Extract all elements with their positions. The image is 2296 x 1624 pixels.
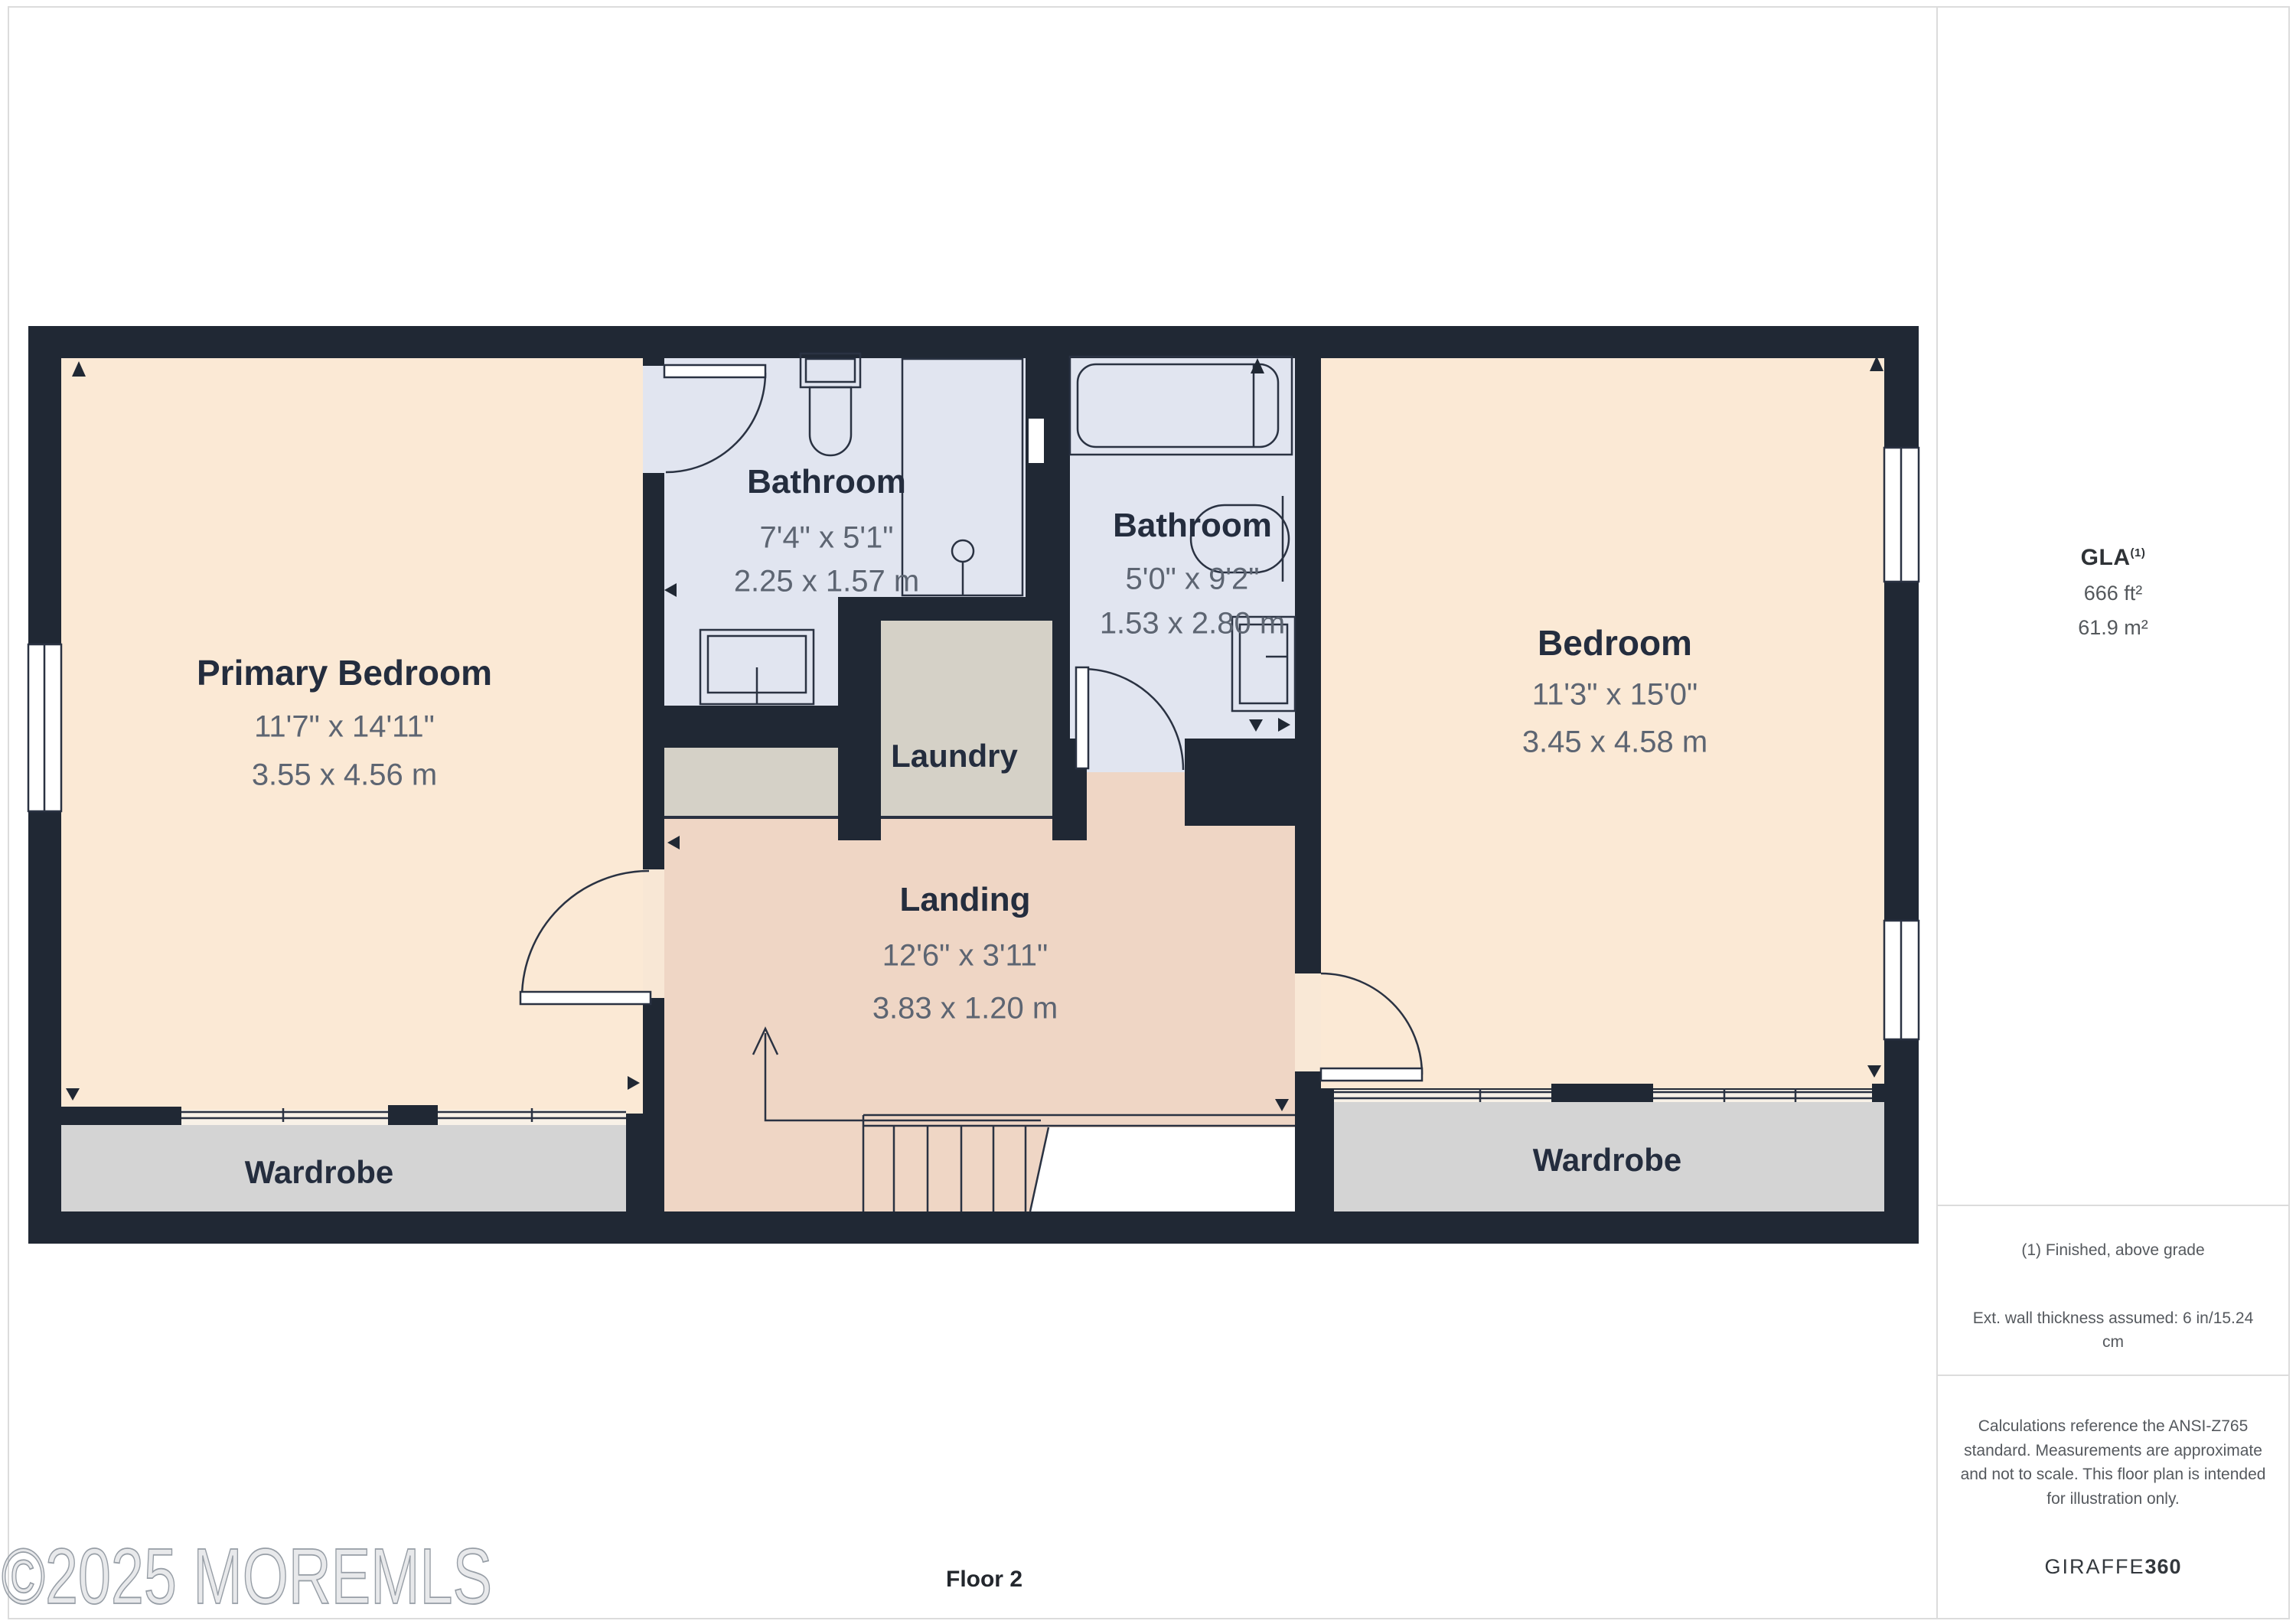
room-dim-imperial: 11'7" x 14'11" xyxy=(254,710,435,745)
room-dim-metric: 3.55 x 4.56 m xyxy=(252,758,437,793)
sidebar-section-divider xyxy=(1938,1205,2288,1206)
room-dim-imperial: 11'3" x 15'0" xyxy=(1532,678,1698,713)
room-label-bathroom1: Bathroom xyxy=(747,463,906,501)
wall-niche xyxy=(1029,419,1044,463)
room-label-bathroom2: Bathroom xyxy=(1113,507,1272,545)
gla-title: GLA(1) xyxy=(1936,545,2290,571)
gla-sqft: 666 ft² xyxy=(1936,582,2290,605)
stairwell-void xyxy=(1030,1127,1295,1211)
gla-sqm: 61.9 m² xyxy=(1936,616,2290,640)
room-dim-metric: 3.45 x 4.58 m xyxy=(1522,726,1707,760)
floorplan-page: Primary Bedroom 11'7" x 14'11" 3.55 x 4.… xyxy=(0,0,2296,1624)
room-label-wardrobe-right: Wardrobe xyxy=(1533,1142,1681,1179)
room-label-wardrobe-left: Wardrobe xyxy=(245,1154,393,1191)
sidebar-section-divider xyxy=(1938,1375,2288,1376)
window-right-upper xyxy=(1884,448,1919,582)
floorplan-canvas xyxy=(0,0,2296,1624)
room-label-bedroom: Bedroom xyxy=(1538,622,1692,664)
room-label-landing: Landing xyxy=(899,881,1030,919)
room-dim-imperial: 7'4" x 5'1" xyxy=(760,521,894,556)
room-dim-imperial: 12'6" x 3'11" xyxy=(882,939,1048,973)
room-dim-metric: 3.83 x 1.20 m xyxy=(872,992,1058,1026)
window-left xyxy=(28,644,61,811)
room-label-primary-bedroom: Primary Bedroom xyxy=(197,652,492,693)
floor-title: Floor 2 xyxy=(946,1567,1022,1593)
sidebar-divider xyxy=(1936,6,1938,1618)
room-dim-metric: 2.25 x 1.57 m xyxy=(734,565,919,599)
sidebar-notes-1: (1) Finished, above grade Ext. wall thic… xyxy=(1936,1238,2290,1355)
giraffe360-logo: GIRAFFE360 xyxy=(1936,1555,2290,1579)
mls-watermark: ©2025 MOREMLS xyxy=(2,1532,492,1622)
room-label-laundry: Laundry xyxy=(891,738,1018,774)
note-finished: (1) Finished, above grade xyxy=(1960,1238,2266,1263)
gla-footnote-marker: (1) xyxy=(2130,546,2145,559)
storeroom-floor xyxy=(664,748,838,816)
room-dim-imperial: 5'0" x 9'2" xyxy=(1126,563,1260,597)
gla-summary: GLA(1) 666 ft² 61.9 m² xyxy=(1936,545,2290,640)
bathroom2-floor xyxy=(1070,358,1295,739)
note-wall-thickness: Ext. wall thickness assumed: 6 in/15.24 … xyxy=(1960,1306,2266,1355)
window-right-lower xyxy=(1884,921,1919,1039)
room-dim-metric: 1.53 x 2.80 m xyxy=(1100,607,1285,641)
note-calculations: Calculations reference the ANSI-Z765 sta… xyxy=(1960,1414,2266,1511)
laundry-floor xyxy=(881,621,1052,817)
sidebar-notes-2: Calculations reference the ANSI-Z765 sta… xyxy=(1936,1414,2290,1579)
bedroom-floor xyxy=(1321,358,1884,1088)
